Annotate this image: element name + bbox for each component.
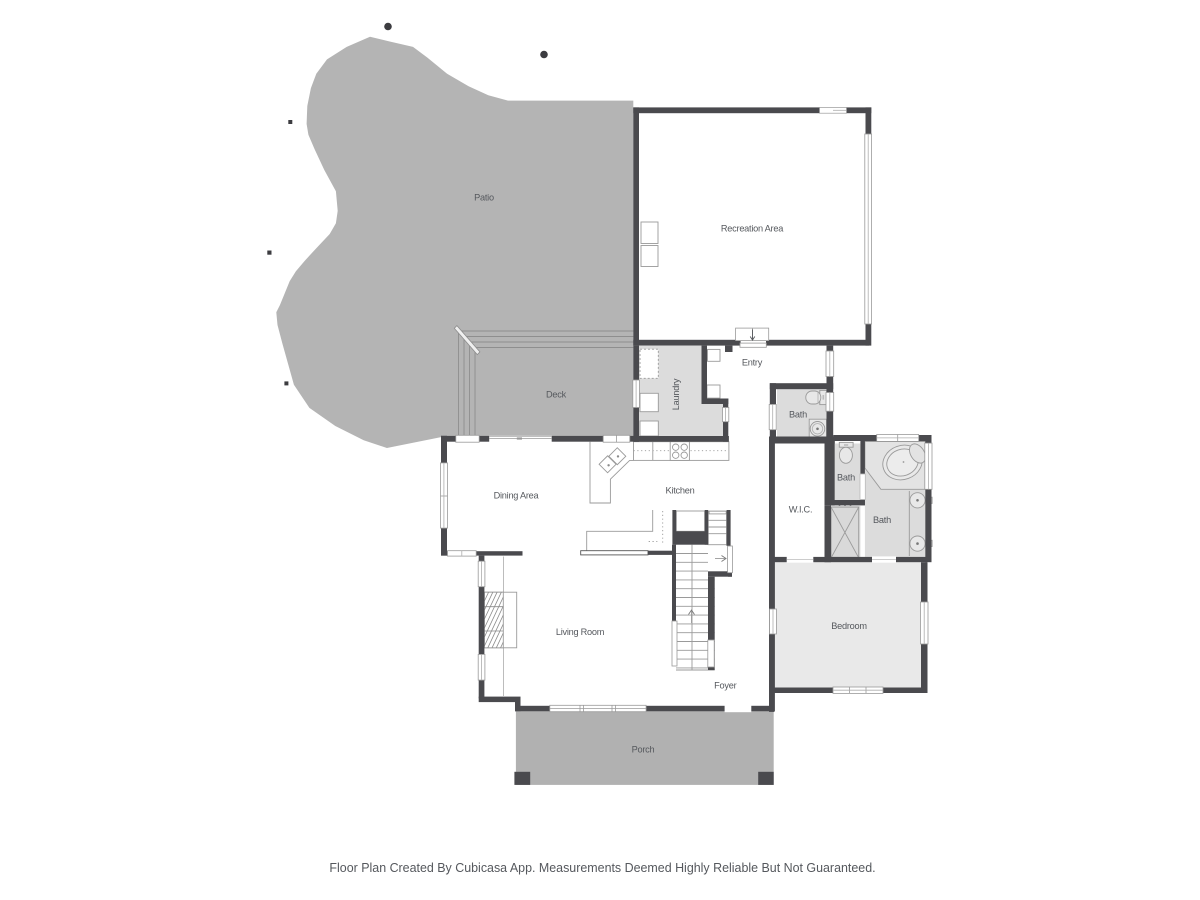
svg-text:Bath: Bath — [873, 515, 891, 525]
svg-text:Living Room: Living Room — [556, 627, 605, 637]
svg-text:W.I.C.: W.I.C. — [789, 505, 813, 515]
svg-text:Porch: Porch — [632, 745, 655, 755]
svg-text:Bath: Bath — [789, 410, 807, 420]
svg-text:Patio: Patio — [474, 193, 494, 203]
svg-text:Foyer: Foyer — [714, 681, 736, 691]
svg-text:Recreation Area: Recreation Area — [721, 224, 784, 234]
svg-text:Dining Area: Dining Area — [494, 491, 540, 501]
svg-text:Laundry: Laundry — [671, 378, 681, 410]
svg-text:Bath: Bath — [837, 473, 855, 483]
svg-text:Deck: Deck — [546, 390, 567, 400]
svg-text:Bedroom: Bedroom — [831, 621, 867, 631]
svg-text:Entry: Entry — [742, 358, 763, 368]
svg-text:Floor Plan Created By Cubicasa: Floor Plan Created By Cubicasa App. Meas… — [329, 861, 875, 875]
svg-text:Kitchen: Kitchen — [666, 486, 695, 496]
